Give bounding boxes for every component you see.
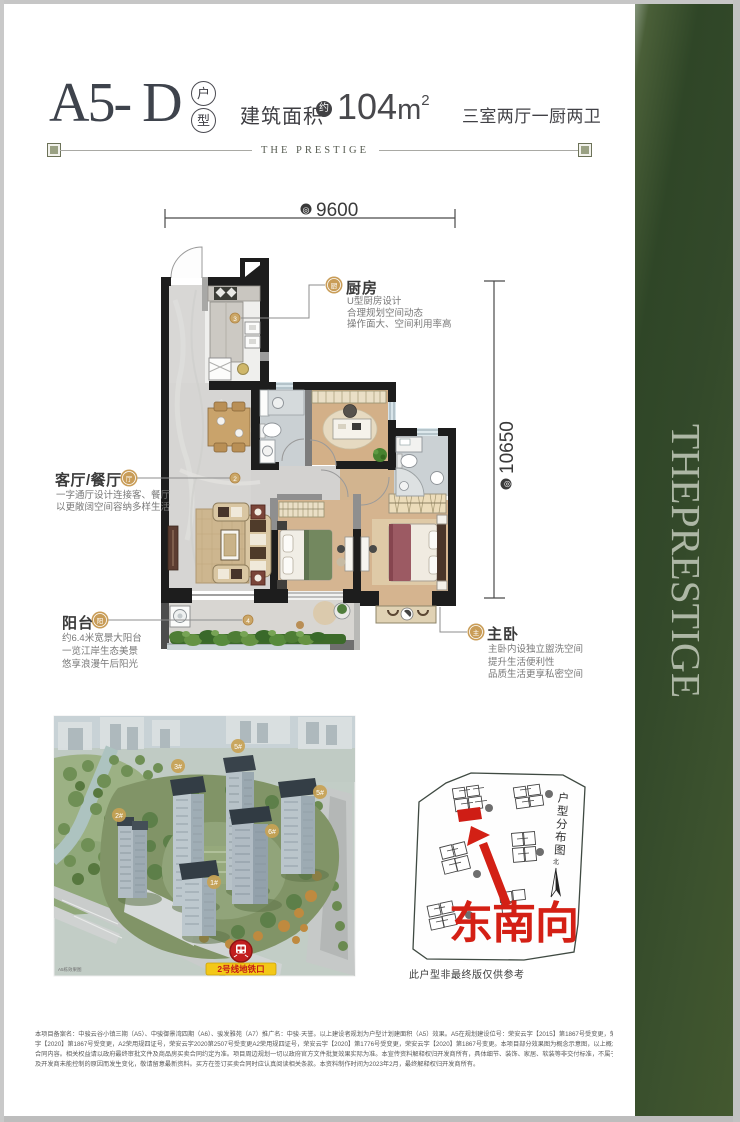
svg-text:主: 主 (473, 628, 480, 637)
svg-text:◎: ◎ (303, 206, 310, 215)
svg-text:型: 型 (556, 804, 568, 819)
svg-text:4: 4 (246, 618, 250, 625)
svg-text:图: 图 (554, 844, 566, 858)
svg-text:A5栋效果图: A5栋效果图 (58, 966, 82, 973)
svg-text:1#: 1# (210, 880, 218, 887)
svg-text:布: 布 (555, 831, 567, 845)
svg-text:北: 北 (553, 858, 559, 866)
svg-text:5#: 5# (316, 790, 324, 797)
svg-text:3: 3 (233, 316, 237, 323)
svg-text:户: 户 (557, 791, 569, 806)
svg-text:分: 分 (555, 818, 568, 832)
svg-text:3#: 3# (174, 764, 182, 771)
svg-text:东南向: 东南向 (449, 899, 578, 948)
svg-text:6#: 6# (268, 829, 276, 836)
svg-text:10650: 10650 (497, 421, 518, 474)
svg-text:2#: 2# (115, 813, 123, 820)
svg-text:2: 2 (233, 476, 237, 483)
svg-text:◎: ◎ (503, 480, 512, 487)
svg-text:厅: 厅 (126, 475, 133, 483)
svg-text:阳: 阳 (97, 616, 104, 625)
svg-text:厨: 厨 (331, 282, 338, 290)
svg-text:9600: 9600 (316, 200, 358, 221)
svg-text:5#: 5# (234, 744, 242, 751)
svg-text:2号线地铁口: 2号线地铁口 (217, 964, 264, 974)
